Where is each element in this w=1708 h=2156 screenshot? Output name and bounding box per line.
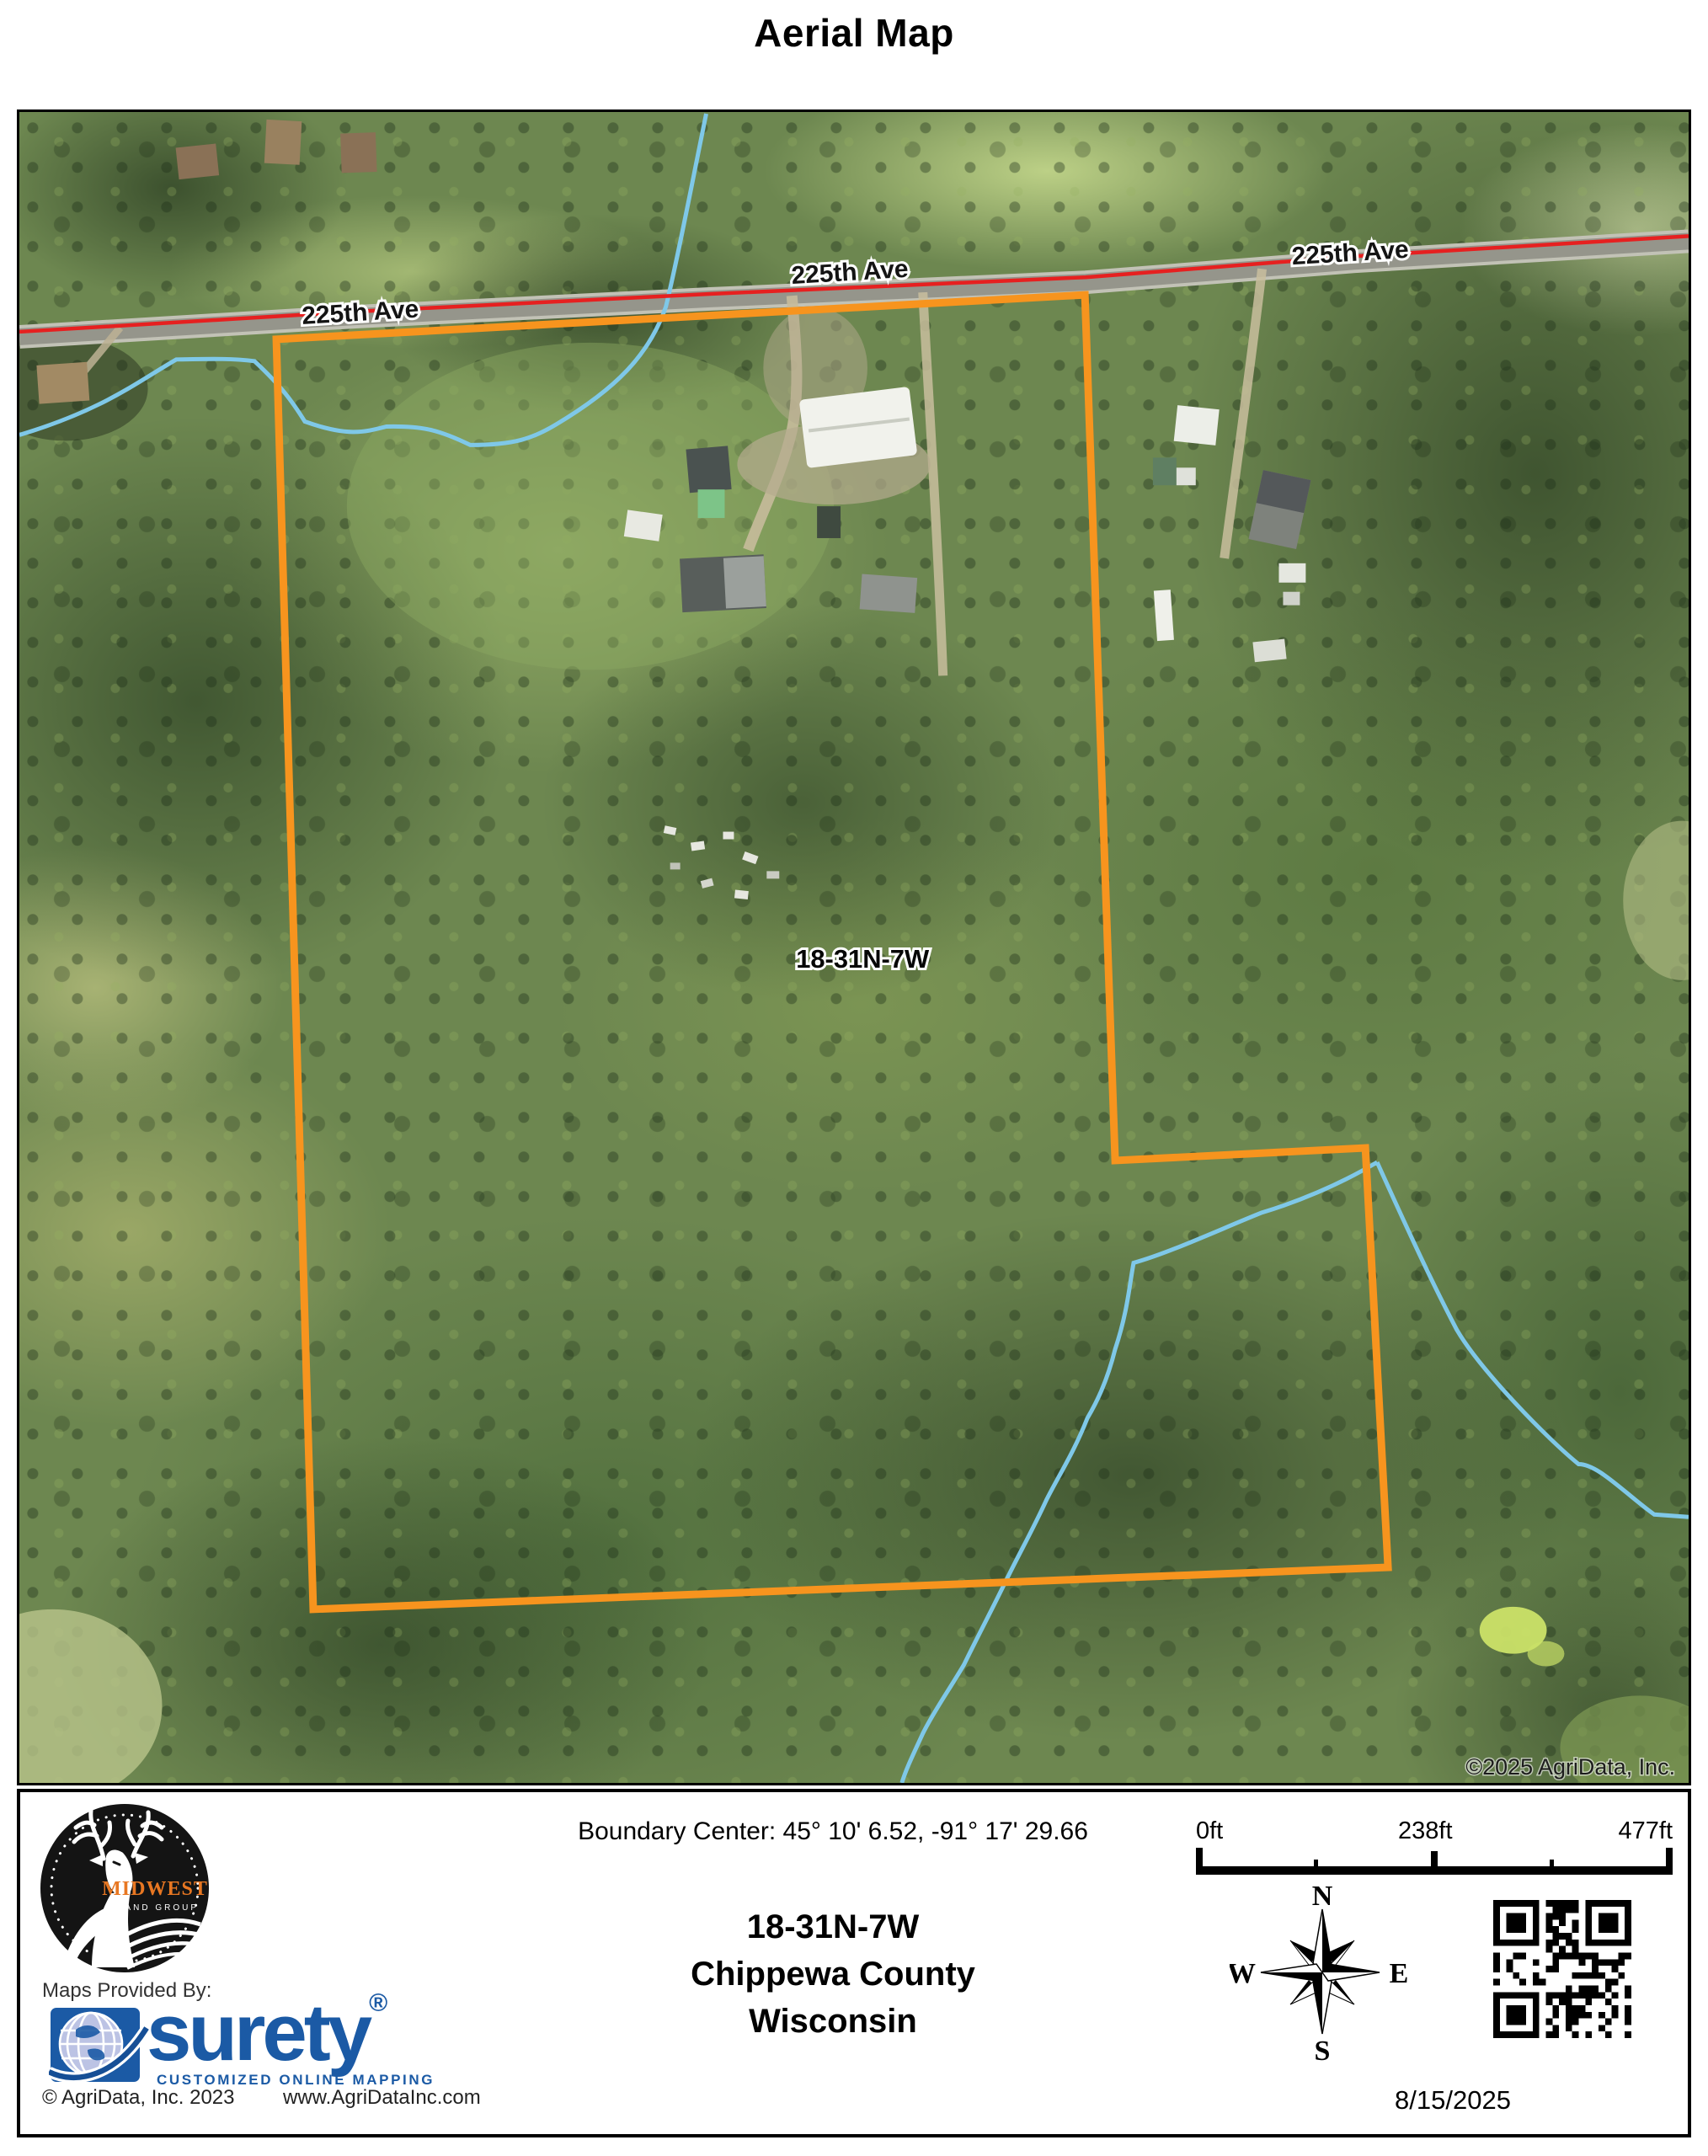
map-legend-footer: MIDWEST LAND GROUP Maps Provided By: sur… bbox=[17, 1789, 1691, 2137]
compass-rose-icon: N S W E bbox=[1230, 1883, 1415, 2064]
scale-label-mid: 238ft bbox=[1398, 1817, 1453, 1845]
shed bbox=[1174, 405, 1220, 446]
scale-bar: 0ft 238ft 477ft bbox=[1196, 1817, 1673, 1885]
agridata-copyright: © AgriData, Inc. 2023 bbox=[42, 2086, 234, 2110]
green-shed bbox=[698, 489, 725, 518]
compass-west: W bbox=[1230, 1958, 1256, 1989]
farm-track bbox=[923, 292, 943, 675]
agridata-website: www.AgriDataInc.com bbox=[283, 2086, 481, 2110]
shed bbox=[1177, 467, 1196, 485]
scale-label-max: 477ft bbox=[1619, 1817, 1673, 1845]
stream-line bbox=[902, 1162, 1689, 1783]
compass-cardinal-points bbox=[1261, 1909, 1380, 2034]
shed bbox=[624, 510, 663, 541]
camper bbox=[1154, 590, 1174, 641]
map-date: 8/15/2025 bbox=[1348, 2085, 1558, 2116]
house-roof bbox=[723, 556, 766, 608]
shed bbox=[817, 506, 841, 538]
house bbox=[36, 362, 89, 404]
outbuilding bbox=[860, 574, 918, 613]
house bbox=[340, 132, 376, 173]
registered-mark: ® bbox=[369, 1989, 387, 2017]
house bbox=[176, 143, 220, 179]
surety-globe-icon bbox=[49, 2004, 153, 2085]
house bbox=[264, 120, 302, 165]
scale-tick bbox=[1550, 1860, 1554, 1875]
compass-south: S bbox=[1315, 2036, 1331, 2064]
scale-tick bbox=[1666, 1848, 1673, 1875]
aerial-map: 225th Ave 225th Ave 225th Ave 18-31N-7W … bbox=[17, 109, 1691, 1785]
clearing bbox=[1528, 1641, 1565, 1667]
qr-code bbox=[1493, 1900, 1631, 2038]
surety-name: surety bbox=[147, 1988, 369, 2078]
compass-north: N bbox=[1312, 1883, 1333, 1912]
page-title: Aerial Map bbox=[0, 10, 1708, 56]
scale-tick bbox=[1314, 1860, 1318, 1875]
surety-wordmark: surety® bbox=[147, 1991, 387, 2073]
scale-label-zero: 0ft bbox=[1196, 1817, 1223, 1845]
logo-subname: LAND GROUP bbox=[118, 1903, 199, 1913]
imagery-credit: ©2025 AgriData, Inc. bbox=[1465, 1754, 1675, 1780]
shed bbox=[1252, 639, 1286, 663]
green-shed bbox=[1153, 457, 1177, 485]
shed bbox=[1283, 592, 1300, 606]
boundary-center: Boundary Center: 45° 10' 6.52, -91° 17' … bbox=[492, 1817, 1174, 1846]
barn-roof bbox=[799, 387, 918, 468]
section-township-range: 18-31N-7W bbox=[492, 1908, 1174, 1946]
parcel-label: 18-31N-7W bbox=[796, 944, 930, 974]
county-name: Chippewa County bbox=[492, 1956, 1174, 1993]
vehicle-cluster bbox=[664, 825, 779, 899]
map-overlay: 225th Ave 225th Ave 225th Ave 18-31N-7W … bbox=[19, 112, 1689, 1783]
shed bbox=[686, 446, 731, 493]
shed bbox=[1278, 563, 1305, 583]
scale-tick bbox=[1196, 1848, 1203, 1875]
state-name: Wisconsin bbox=[492, 2003, 1174, 2041]
compass-east: E bbox=[1390, 1958, 1409, 1989]
field-patch bbox=[19, 1609, 162, 1783]
midwest-land-group-logo: MIDWEST LAND GROUP bbox=[35, 1799, 214, 1977]
field-patch bbox=[1623, 821, 1689, 980]
scale-tick bbox=[1431, 1851, 1438, 1875]
logo-name: MIDWEST bbox=[102, 1878, 208, 1900]
